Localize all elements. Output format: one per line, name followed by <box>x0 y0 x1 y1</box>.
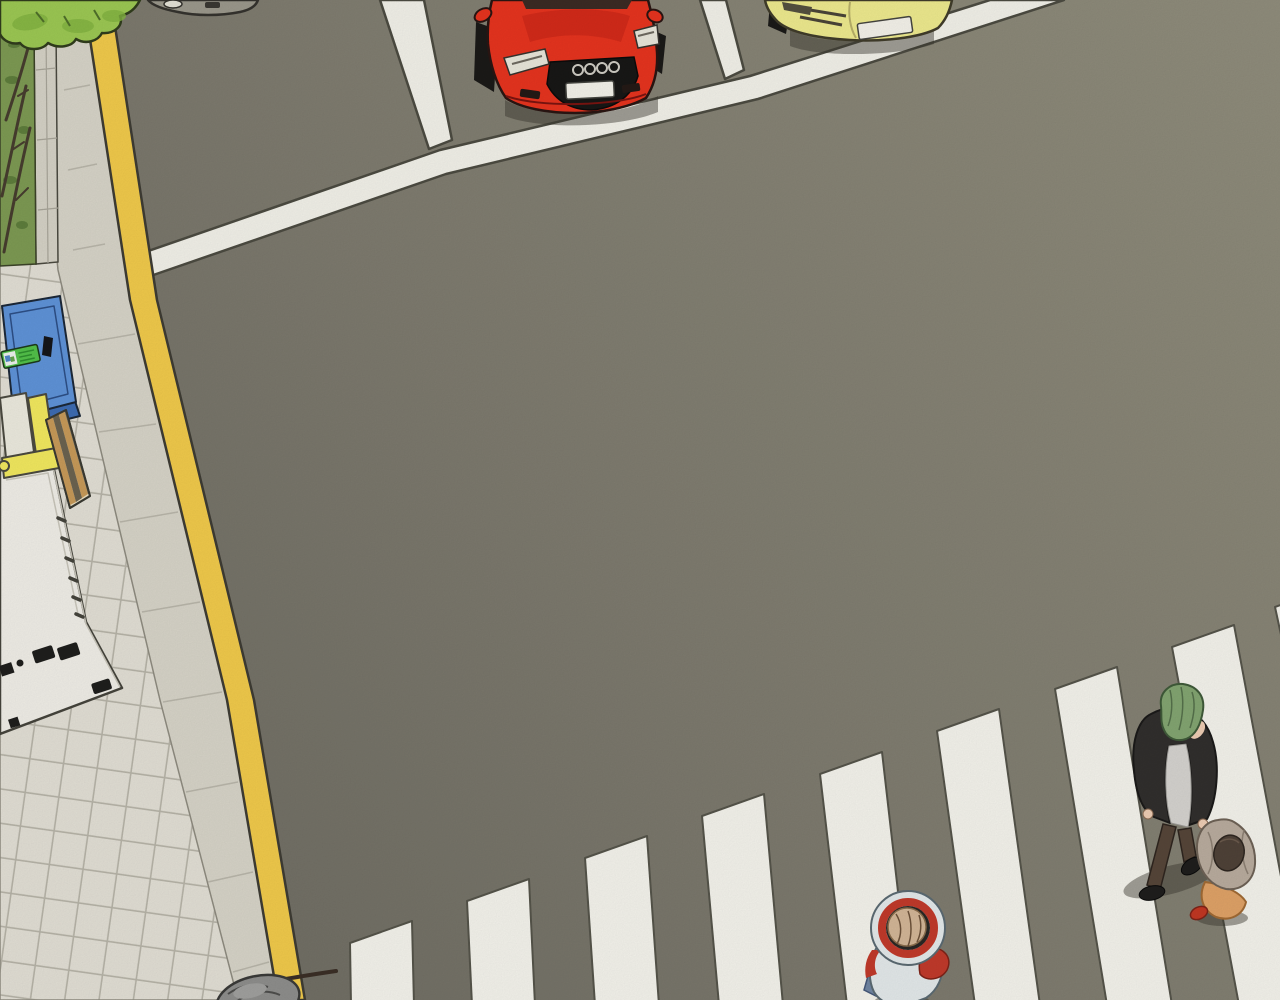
street-scene <box>0 0 1280 1000</box>
grain-overlay <box>0 0 1280 1000</box>
